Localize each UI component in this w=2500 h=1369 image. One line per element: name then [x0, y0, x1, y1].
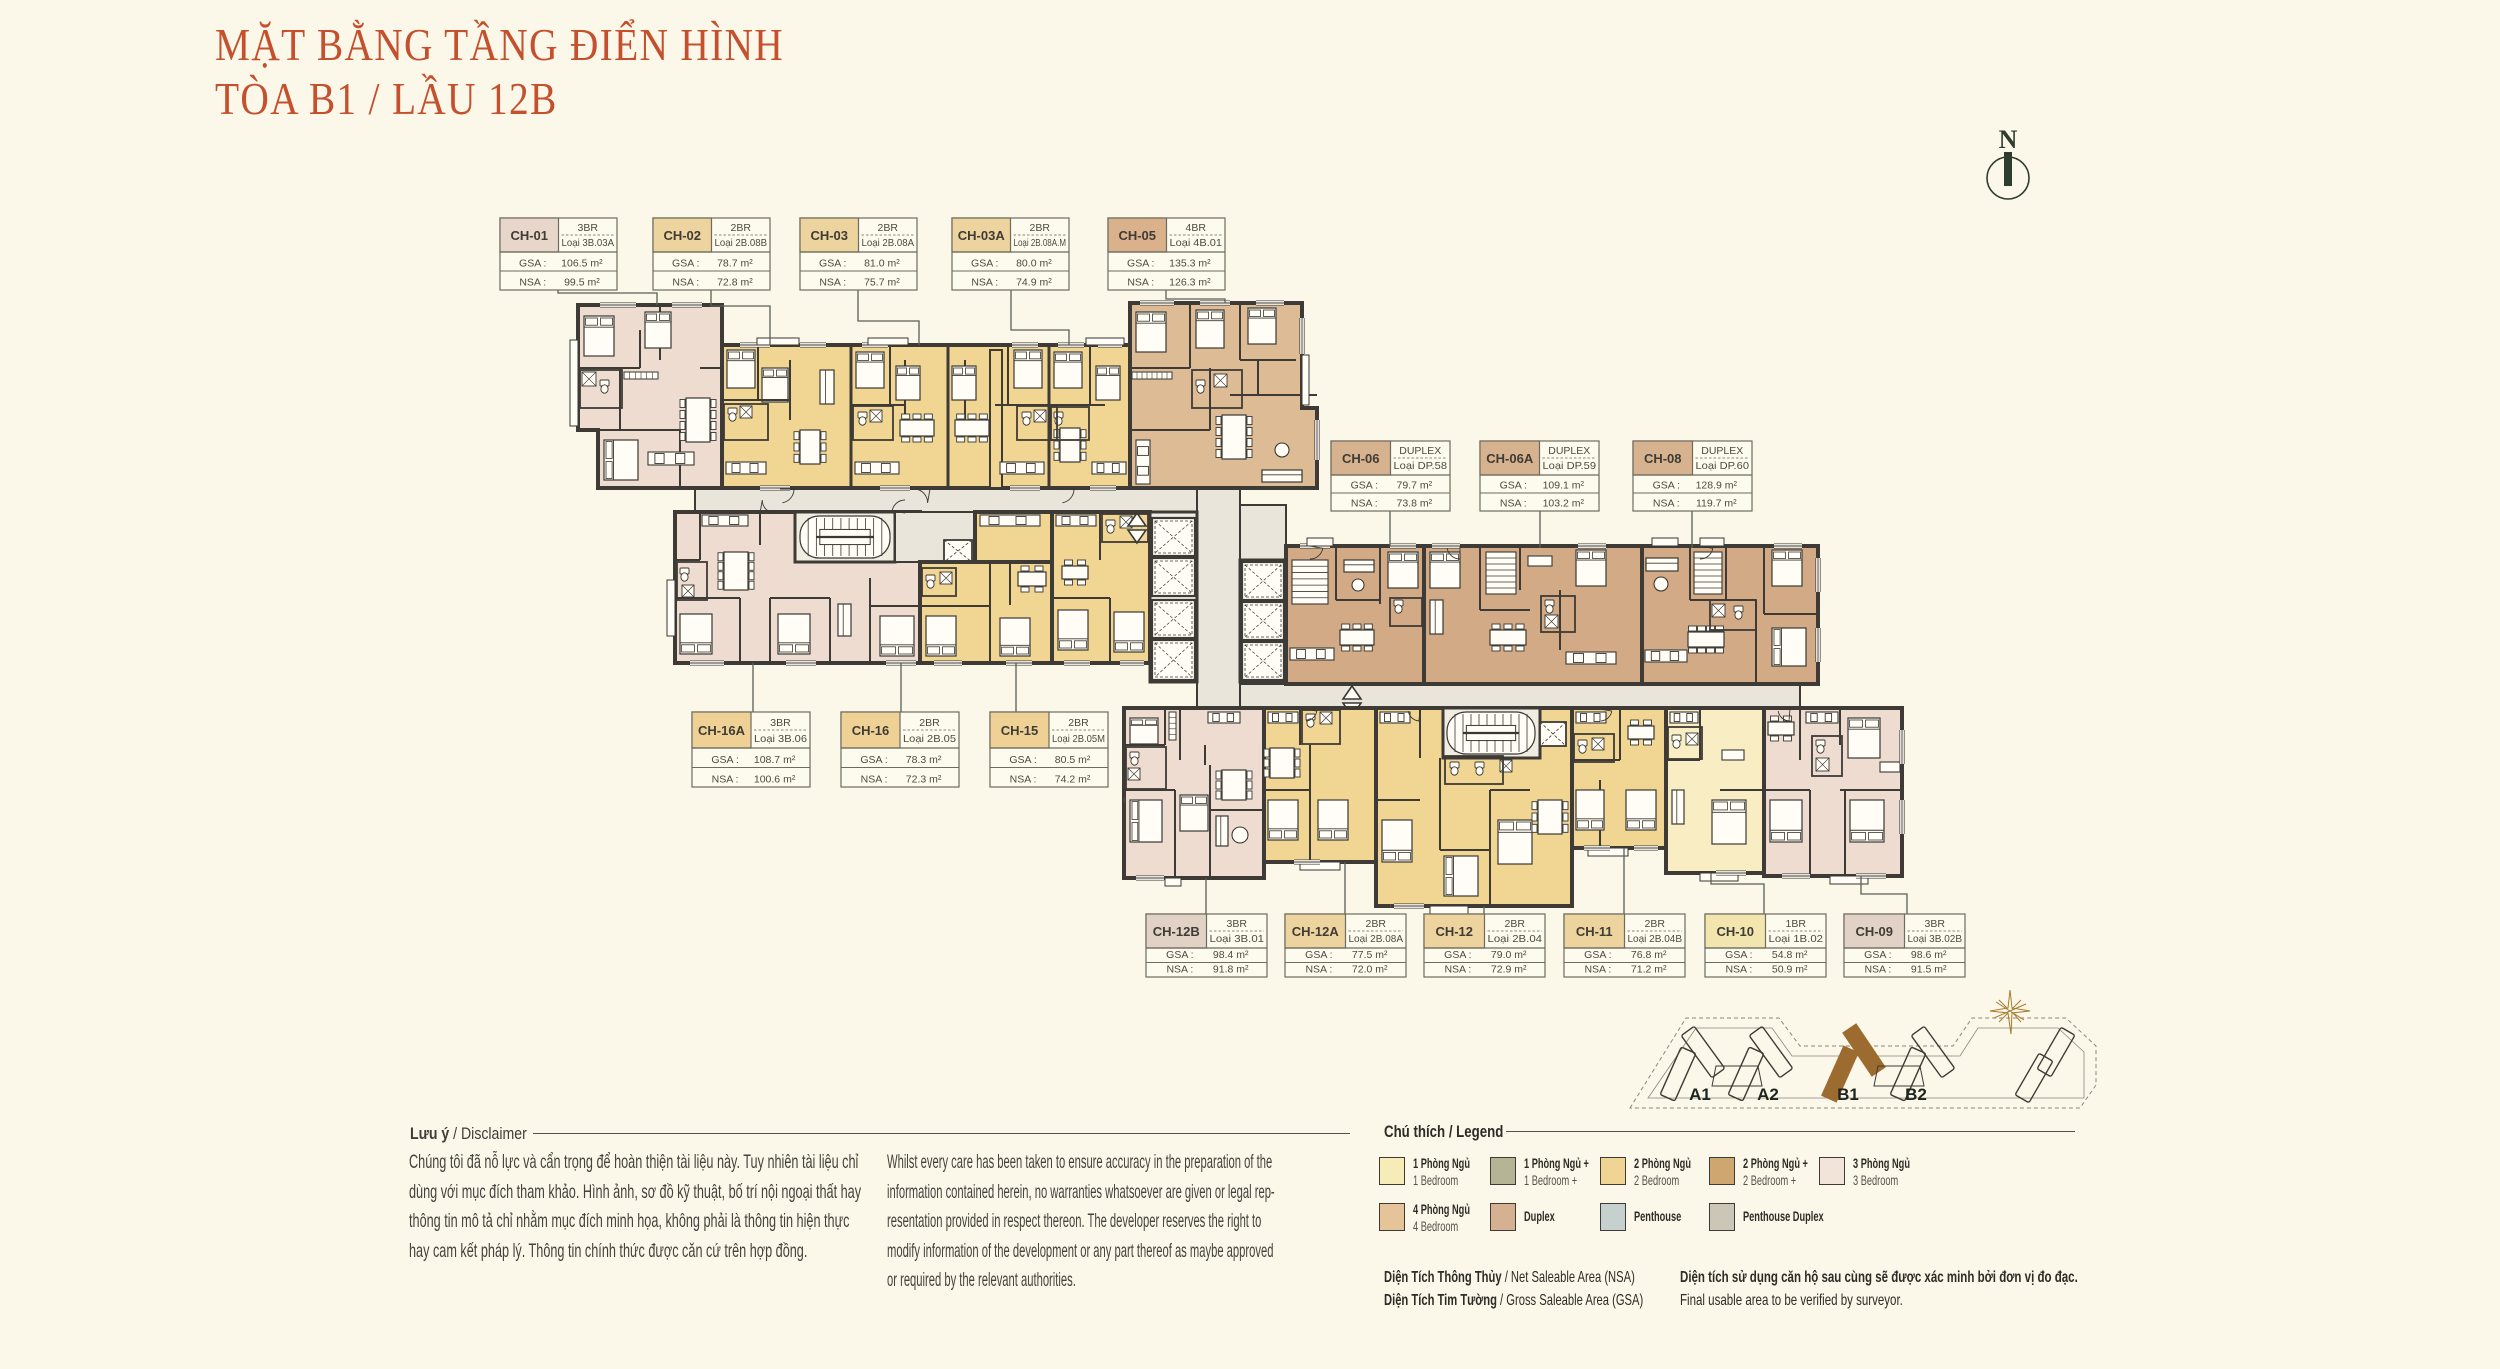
svg-text:GSA :: GSA :	[819, 258, 846, 270]
svg-text:DUPLEX: DUPLEX	[1548, 445, 1590, 457]
svg-text:B1: B1	[1837, 1085, 1859, 1104]
svg-text:80.5 m²: 80.5 m²	[1055, 754, 1091, 766]
svg-text:108.7 m²: 108.7 m²	[754, 754, 796, 766]
svg-text:73.8 m²: 73.8 m²	[1396, 498, 1432, 510]
svg-text:Loại 2B.04B: Loại 2B.04B	[1628, 933, 1683, 945]
svg-text:GSA :: GSA :	[1864, 949, 1891, 961]
svg-text:3BR: 3BR	[578, 222, 599, 234]
svg-text:GSA :: GSA :	[1127, 258, 1154, 270]
svg-text:Loại 2B.08A: Loại 2B.08A	[862, 237, 915, 249]
svg-text:126.3 m²: 126.3 m²	[1169, 277, 1211, 289]
svg-text:GSA :: GSA :	[1166, 949, 1193, 961]
svg-text:NSA :: NSA :	[1864, 964, 1891, 976]
svg-text:Loại 1B.02: Loại 1B.02	[1769, 933, 1824, 945]
svg-text:CH-12B: CH-12B	[1153, 924, 1200, 939]
svg-text:N: N	[1999, 125, 2018, 154]
svg-text:NSA :: NSA :	[1166, 964, 1193, 976]
svg-text:106.5 m²: 106.5 m²	[561, 258, 603, 270]
svg-text:CH-01: CH-01	[510, 228, 548, 243]
svg-text:2BR: 2BR	[1645, 918, 1666, 930]
svg-text:75.7 m²: 75.7 m²	[864, 277, 900, 289]
svg-text:Loại 2B.08A.M: Loại 2B.08A.M	[1014, 237, 1067, 249]
svg-text:Loại 4B.01: Loại 4B.01	[1170, 237, 1223, 249]
svg-text:77.5 m²: 77.5 m²	[1352, 949, 1388, 961]
svg-text:CH-03: CH-03	[810, 228, 848, 243]
svg-text:GSA :: GSA :	[1725, 949, 1752, 961]
svg-text:98.6 m²: 98.6 m²	[1911, 949, 1947, 961]
svg-text:135.3 m²: 135.3 m²	[1169, 258, 1211, 270]
svg-text:NSA :: NSA :	[712, 774, 739, 786]
svg-text:74.2 m²: 74.2 m²	[1055, 774, 1091, 786]
svg-text:Loại 3B.03A: Loại 3B.03A	[562, 237, 615, 249]
svg-text:80.0 m²: 80.0 m²	[1016, 258, 1052, 270]
svg-text:2BR: 2BR	[878, 222, 899, 234]
svg-text:NSA :: NSA :	[1500, 498, 1527, 510]
svg-text:72.0 m²: 72.0 m²	[1352, 964, 1388, 976]
svg-text:2BR: 2BR	[1366, 918, 1387, 930]
svg-text:78.7 m²: 78.7 m²	[717, 258, 753, 270]
svg-text:GSA :: GSA :	[672, 258, 699, 270]
svg-text:103.2 m²: 103.2 m²	[1543, 498, 1585, 510]
svg-text:50.9 m²: 50.9 m²	[1772, 964, 1808, 976]
svg-text:NSA :: NSA :	[1127, 277, 1154, 289]
svg-text:Loại 3B.02B: Loại 3B.02B	[1908, 933, 1963, 945]
svg-text:NSA :: NSA :	[1351, 498, 1378, 510]
svg-text:78.3 m²: 78.3 m²	[906, 754, 942, 766]
svg-text:CH-09: CH-09	[1855, 924, 1893, 939]
svg-text:2BR: 2BR	[919, 717, 940, 729]
svg-text:Loại DP.58: Loại DP.58	[1394, 460, 1448, 472]
svg-text:Loại 2B.05M: Loại 2B.05M	[1052, 733, 1105, 745]
svg-text:NSA :: NSA :	[519, 277, 546, 289]
svg-text:GSA :: GSA :	[1444, 949, 1471, 961]
svg-text:Loại 2B.08B: Loại 2B.08B	[715, 237, 768, 249]
svg-text:GSA :: GSA :	[1500, 480, 1527, 492]
svg-text:CH-15: CH-15	[1001, 723, 1039, 738]
svg-text:GSA :: GSA :	[1351, 480, 1378, 492]
svg-text:54.8 m²: 54.8 m²	[1772, 949, 1808, 961]
svg-text:CH-02: CH-02	[663, 228, 701, 243]
svg-text:NSA :: NSA :	[1305, 964, 1332, 976]
svg-text:CH-08: CH-08	[1644, 451, 1682, 466]
svg-text:CH-06: CH-06	[1342, 451, 1380, 466]
svg-text:2BR: 2BR	[1068, 717, 1089, 729]
svg-text:GSA :: GSA :	[519, 258, 546, 270]
svg-text:CH-12A: CH-12A	[1292, 924, 1340, 939]
svg-text:NSA :: NSA :	[861, 774, 888, 786]
svg-text:NSA :: NSA :	[819, 277, 846, 289]
svg-text:DUPLEX: DUPLEX	[1399, 445, 1441, 457]
svg-text:CH-05: CH-05	[1118, 228, 1156, 243]
svg-text:Loại 2B.08A: Loại 2B.08A	[1349, 933, 1404, 945]
svg-text:CH-03A: CH-03A	[958, 228, 1006, 243]
svg-text:A2: A2	[1757, 1085, 1779, 1104]
svg-text:GSA :: GSA :	[971, 258, 998, 270]
svg-text:NSA :: NSA :	[672, 277, 699, 289]
svg-text:GSA :: GSA :	[1584, 949, 1611, 961]
svg-text:72.8 m²: 72.8 m²	[717, 277, 753, 289]
svg-text:91.8 m²: 91.8 m²	[1213, 964, 1249, 976]
svg-text:79.7 m²: 79.7 m²	[1396, 480, 1432, 492]
svg-text:NSA :: NSA :	[1444, 964, 1471, 976]
svg-text:Loại 3B.06: Loại 3B.06	[754, 733, 807, 745]
svg-text:Loại 2B.05: Loại 2B.05	[903, 733, 956, 745]
svg-text:Loại 2B.04: Loại 2B.04	[1488, 933, 1543, 945]
svg-text:NSA :: NSA :	[1010, 774, 1037, 786]
svg-text:GSA :: GSA :	[1305, 949, 1332, 961]
svg-text:91.5 m²: 91.5 m²	[1911, 964, 1947, 976]
svg-text:GSA :: GSA :	[1009, 754, 1036, 766]
svg-text:119.7 m²: 119.7 m²	[1696, 498, 1737, 510]
svg-text:CH-06A: CH-06A	[1486, 451, 1534, 466]
svg-text:CH-16: CH-16	[852, 723, 890, 738]
svg-text:98.4 m²: 98.4 m²	[1213, 949, 1249, 961]
svg-text:NSA :: NSA :	[1725, 964, 1752, 976]
svg-text:74.9 m²: 74.9 m²	[1016, 277, 1052, 289]
svg-text:GSA :: GSA :	[711, 754, 738, 766]
svg-text:81.0 m²: 81.0 m²	[864, 258, 900, 270]
svg-text:DUPLEX: DUPLEX	[1701, 445, 1743, 457]
svg-text:A1: A1	[1689, 1085, 1711, 1104]
svg-text:100.6 m²: 100.6 m²	[754, 774, 796, 786]
svg-text:B2: B2	[1905, 1085, 1927, 1104]
svg-text:CH-11: CH-11	[1576, 924, 1613, 939]
svg-text:3BR: 3BR	[1227, 918, 1248, 930]
svg-text:NSA :: NSA :	[971, 277, 998, 289]
svg-text:Loại DP.59: Loại DP.59	[1543, 460, 1597, 472]
svg-text:71.2 m²: 71.2 m²	[1631, 964, 1667, 976]
svg-text:72.3 m²: 72.3 m²	[906, 774, 942, 786]
svg-text:79.0 m²: 79.0 m²	[1491, 949, 1527, 961]
svg-text:4BR: 4BR	[1186, 222, 1207, 234]
svg-text:3BR: 3BR	[770, 717, 791, 729]
svg-text:CH-12: CH-12	[1435, 924, 1473, 939]
svg-text:109.1 m²: 109.1 m²	[1543, 480, 1585, 492]
svg-text:2BR: 2BR	[1505, 918, 1526, 930]
svg-text:NSA :: NSA :	[1653, 498, 1680, 510]
svg-text:NSA :: NSA :	[1584, 964, 1611, 976]
svg-text:1BR: 1BR	[1786, 918, 1807, 930]
svg-text:CH-10: CH-10	[1716, 924, 1754, 939]
svg-text:2BR: 2BR	[1030, 222, 1051, 234]
svg-text:GSA :: GSA :	[860, 754, 887, 766]
svg-text:128.9 m²: 128.9 m²	[1696, 480, 1738, 492]
svg-text:2BR: 2BR	[731, 222, 752, 234]
svg-text:Loại DP.60: Loại DP.60	[1696, 460, 1750, 472]
svg-text:GSA :: GSA :	[1653, 480, 1680, 492]
svg-text:3BR: 3BR	[1925, 918, 1946, 930]
svg-text:99.5 m²: 99.5 m²	[564, 277, 600, 289]
svg-text:72.9 m²: 72.9 m²	[1491, 964, 1527, 976]
svg-text:CH-16A: CH-16A	[698, 723, 746, 738]
svg-text:Loại 3B.01: Loại 3B.01	[1210, 933, 1265, 945]
svg-text:76.8 m²: 76.8 m²	[1631, 949, 1667, 961]
